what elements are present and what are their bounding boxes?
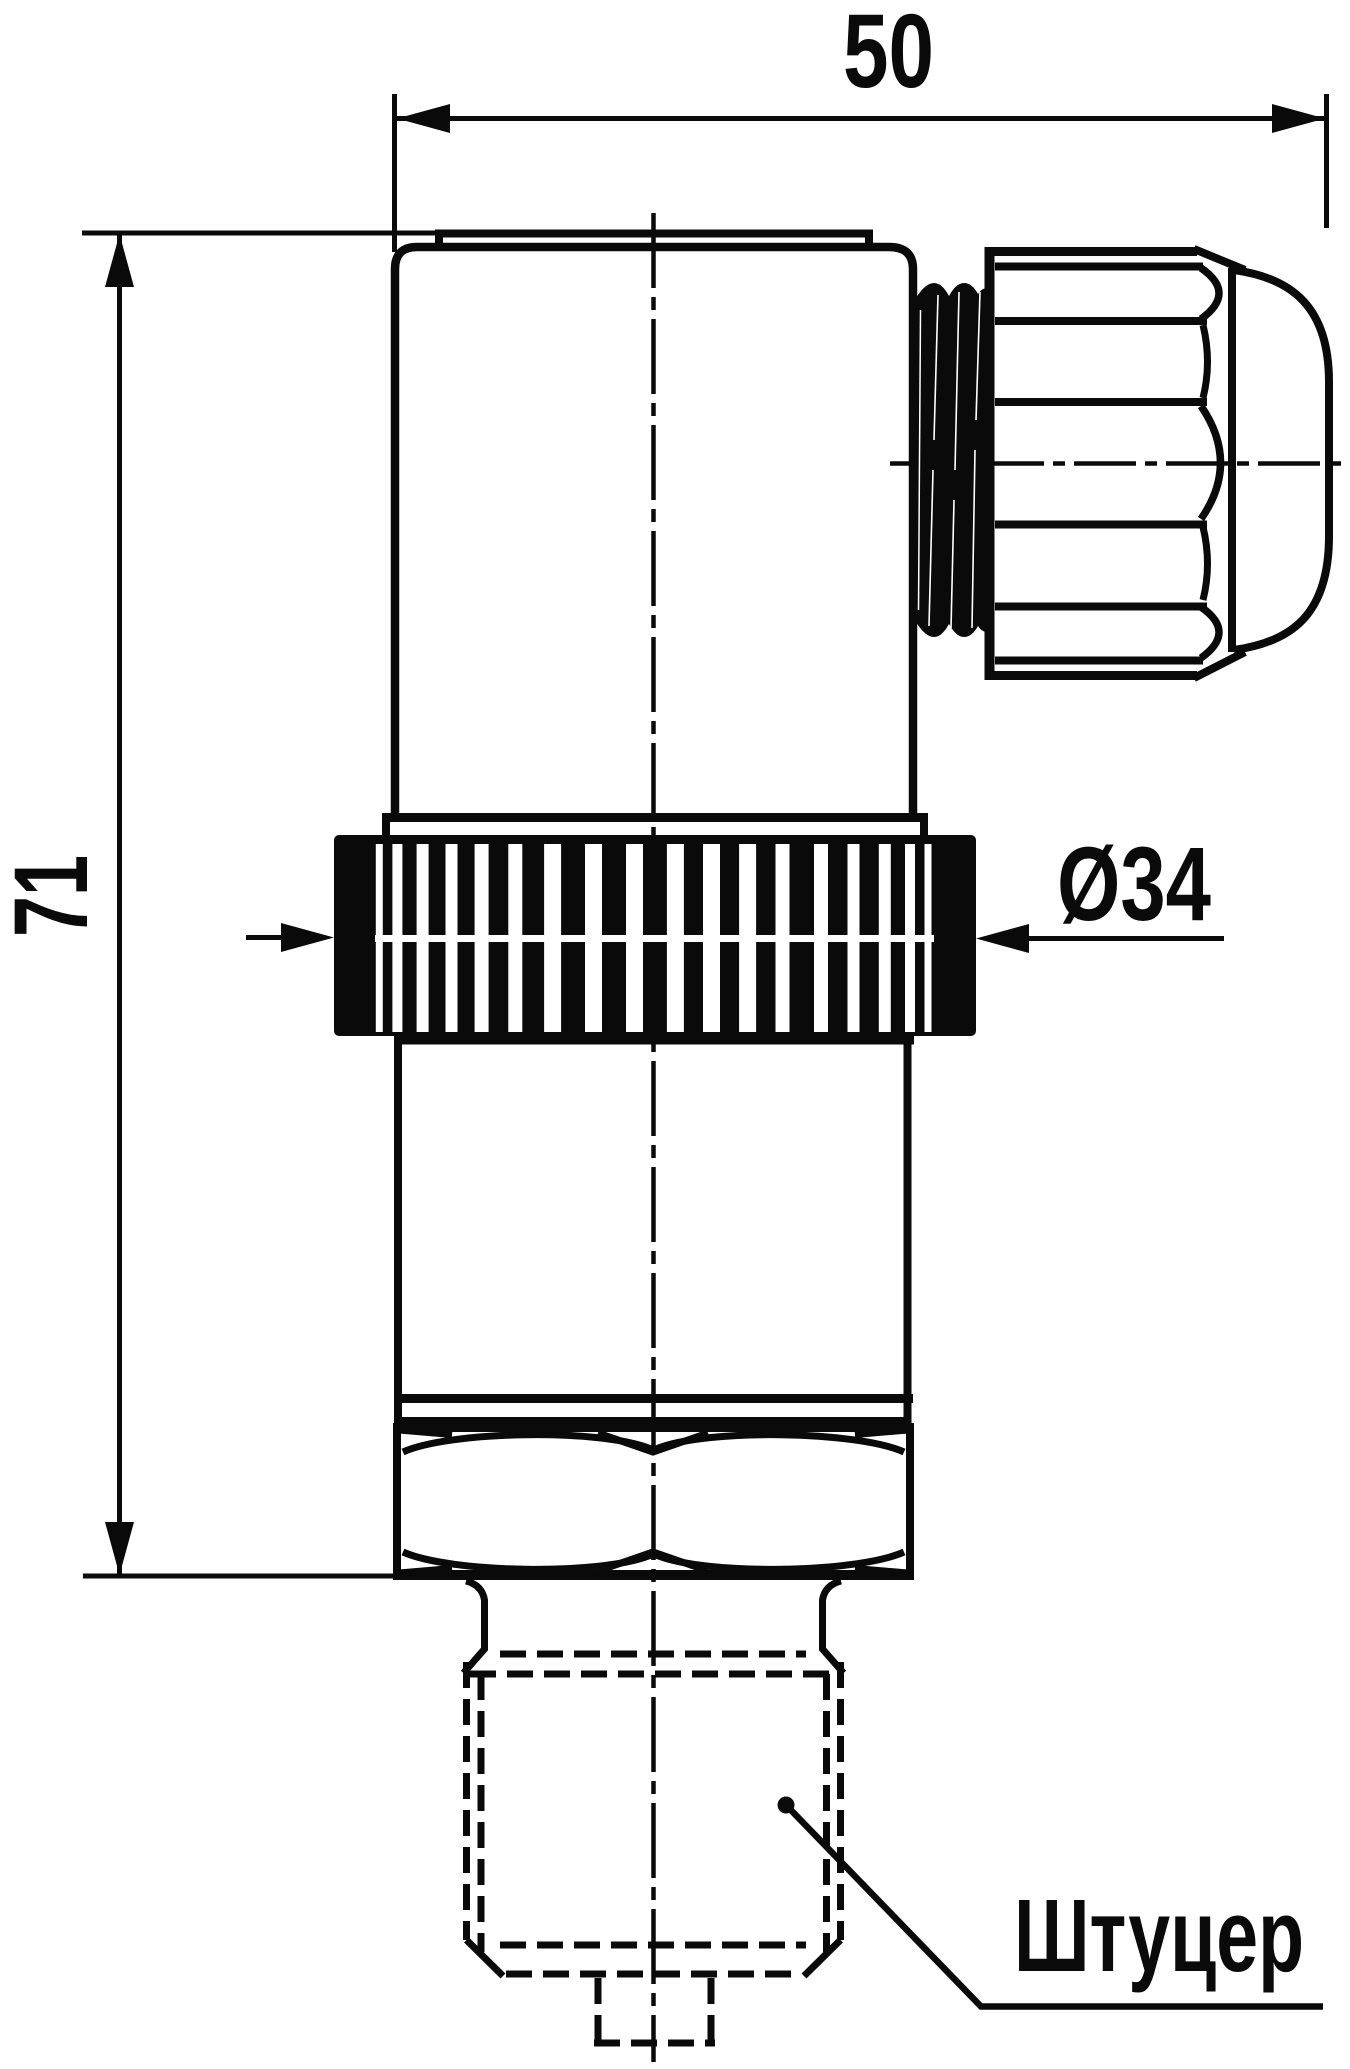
svg-text:Штуцер: Штуцер <box>1014 1878 1304 1993</box>
svg-text:50: 50 <box>843 0 934 110</box>
svg-text:Ø34: Ø34 <box>1057 826 1211 943</box>
svg-text:71: 71 <box>0 855 110 937</box>
